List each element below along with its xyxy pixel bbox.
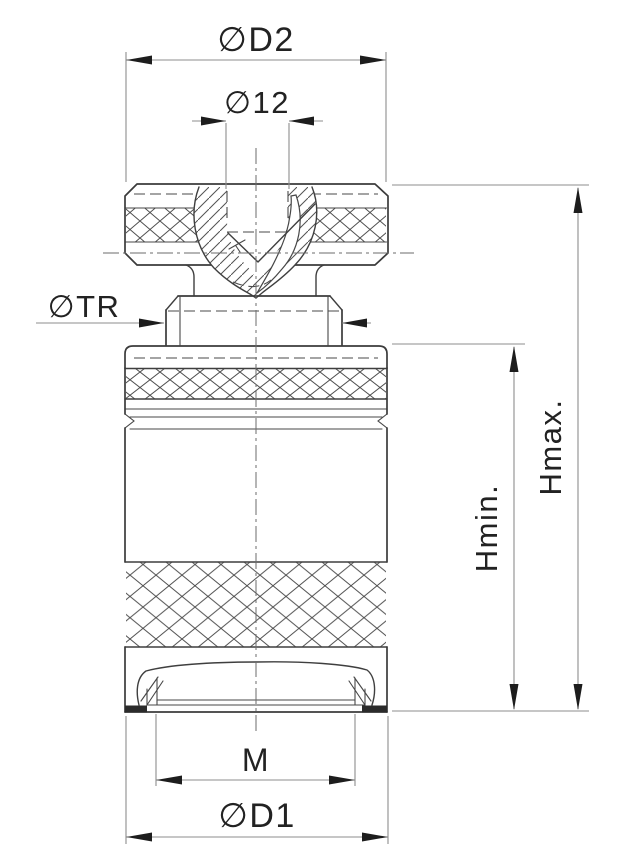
collar-chamfers [166, 296, 342, 310]
dim-label-d1: ∅D1 [218, 797, 296, 835]
dim-label-d2: ∅D2 [217, 21, 295, 59]
dim-tr: ∅TR [36, 289, 371, 328]
dim-12: ∅12 [192, 85, 323, 189]
dim-hmin: Hmin. [392, 344, 525, 710]
m-arrow-right [329, 776, 355, 785]
d12-extension-lines [226, 123, 289, 189]
base-foot-left [125, 706, 147, 713]
thread-root-lines [180, 296, 328, 345]
technical-drawing-canvas: ∅D2 ∅12 ∅TR Hmax. Hmin. M [0, 0, 627, 867]
hmin-arrow-bottom [510, 684, 519, 710]
dim-label-tr: ∅TR [48, 289, 121, 324]
dim-label-12: ∅12 [224, 85, 290, 120]
d2-arrow-right [360, 56, 386, 65]
m-arrow-left [156, 776, 182, 785]
base-foot-right [362, 706, 387, 713]
technical-drawing-page: ∅D2 ∅12 ∅TR Hmax. Hmin. M [0, 0, 627, 867]
dim-label-m: M [242, 742, 270, 778]
dim-label-hmax: Hmax. [533, 398, 568, 495]
thread-crest-lines [166, 310, 342, 345]
d12-arrow-right [289, 117, 314, 126]
d2-arrow-left [126, 56, 152, 65]
d1-arrow-right [362, 833, 388, 842]
hmin-arrow-top [510, 346, 519, 372]
d1-arrow-left [126, 833, 152, 842]
dim-label-hmin: Hmin. [469, 484, 504, 572]
tr-arrow-left [139, 319, 164, 328]
hmax-arrow-top [574, 187, 583, 213]
tr-arrow-right [342, 319, 367, 328]
dim-hmax: Hmax. [392, 185, 589, 711]
ball-joint-section [194, 187, 317, 298]
d12-arrow-left [201, 117, 226, 126]
hmax-arrow-bottom [574, 684, 583, 710]
